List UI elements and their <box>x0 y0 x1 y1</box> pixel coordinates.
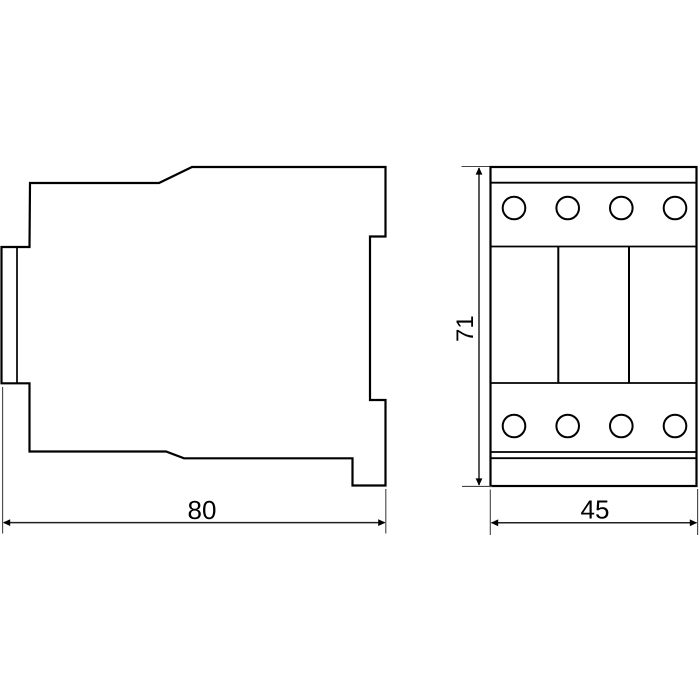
svg-text:71: 71 <box>452 315 479 342</box>
svg-text:45: 45 <box>581 495 610 525</box>
svg-text:80: 80 <box>188 495 217 525</box>
